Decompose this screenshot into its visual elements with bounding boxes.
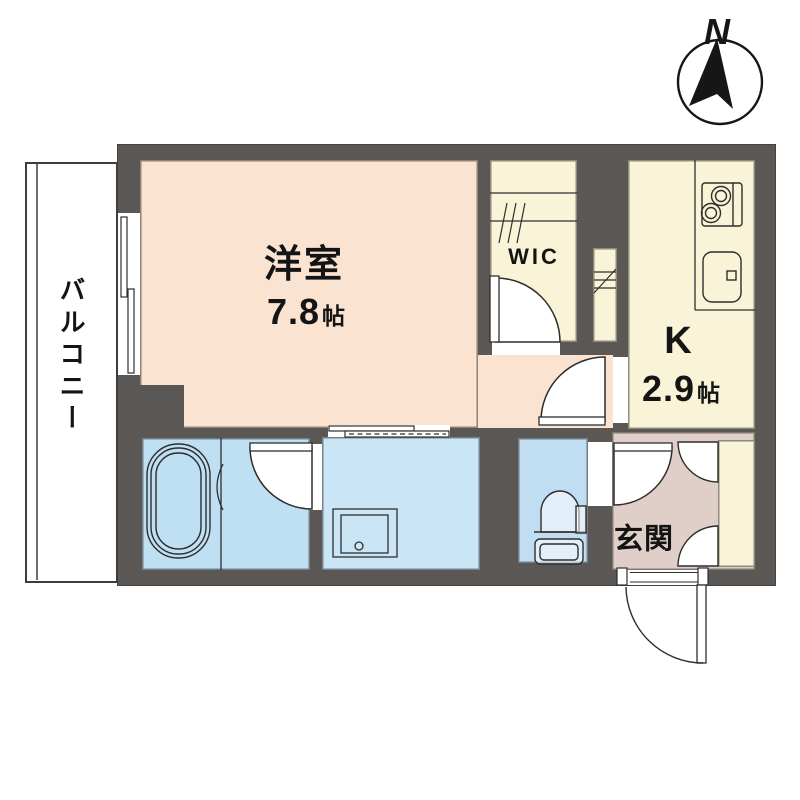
entrance-label: 玄関: [614, 526, 674, 555]
washing-machine-pan-icon: [333, 509, 397, 557]
toilet-icon: [534, 491, 586, 564]
living-room-label: 洋室: [264, 246, 344, 284]
floor-plan: N バルコニー 洋室 7.8帖 WIC K 2.9帖 玄関: [0, 0, 800, 800]
living-size-unit: 帖: [322, 305, 345, 328]
living-room-size: 7.8帖: [267, 294, 345, 330]
entrance-door: [617, 568, 708, 663]
kitchen-size-value: 2.9: [642, 371, 695, 407]
kitchen-sink-icon: [703, 252, 741, 302]
bathroom-door: [250, 443, 312, 509]
compass-n-label: N: [704, 11, 731, 52]
living-size-value: 7.8: [267, 294, 320, 330]
balcony-sliding-window: [121, 217, 134, 373]
shoe-cabinet-doors: [678, 442, 718, 566]
kitchen-size-unit: 帖: [697, 382, 720, 405]
wic-door: [490, 276, 560, 342]
bath-partition: [217, 438, 223, 570]
toilet-door: [614, 443, 672, 505]
bathtub-icon: [147, 444, 210, 558]
balcony-label: バルコニー: [58, 276, 84, 436]
kitchen-size: 2.9帖: [642, 371, 720, 407]
wic-label: WIC: [508, 246, 560, 268]
stove-icon: [702, 183, 743, 226]
kitchen-door: [539, 357, 605, 425]
wic-shelf-lines: [490, 193, 577, 243]
washroom-sliding-door: [329, 426, 449, 437]
kitchen-label: K: [664, 322, 691, 360]
side-closet-hatch: [594, 269, 616, 293]
